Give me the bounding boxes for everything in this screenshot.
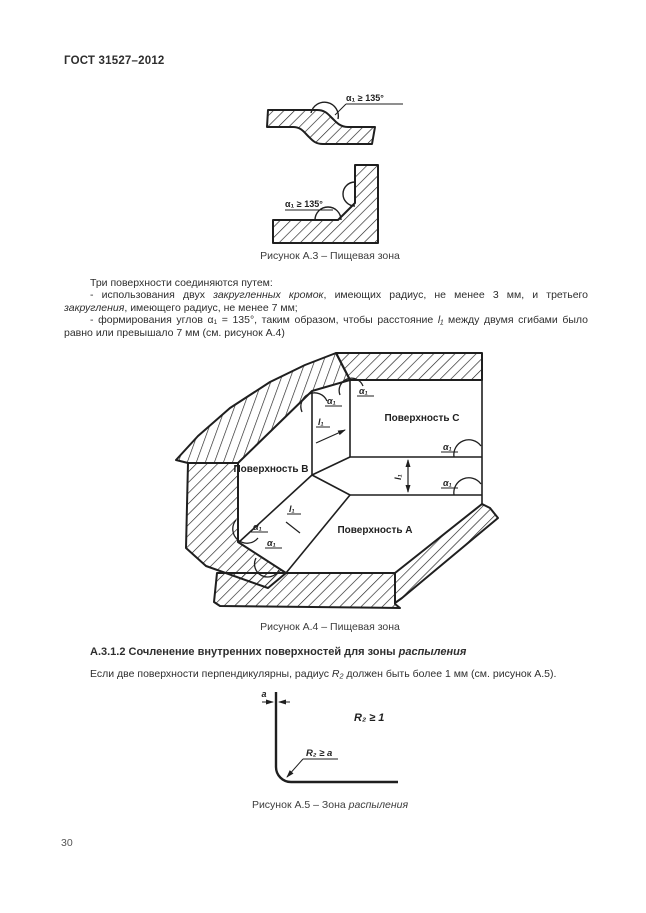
upper-left-band	[176, 353, 350, 463]
section-body: Если две поверхности перпендикулярны, ра…	[64, 668, 588, 680]
right-band	[395, 504, 498, 603]
heading-italic-term: распыления	[399, 646, 467, 658]
text-run: , имеющих радиус, не менее 3 мм, и треть…	[324, 289, 588, 301]
section-heading: А.3.1.2 Сочленение внутренних поверхност…	[64, 646, 588, 658]
body-paragraphs: Три поверхности соединяются путем: - исп…	[64, 277, 588, 339]
text-run: должен быть более 1 мм (см. рисунок А.5)…	[343, 668, 556, 680]
surface-b-label: Поверхность В	[233, 464, 308, 475]
alpha1-label: α₁	[267, 538, 276, 548]
angle-arc	[343, 182, 355, 206]
paragraph-intro: Три поверхности соединяются путем:	[64, 277, 588, 289]
alpha1-label: α₁	[327, 396, 336, 406]
figure-a5-drawing: a R₂ ≥ 1 R₂ ≥ a	[228, 688, 410, 800]
figure-a3-drawing: α₁ ≥ 135° α₁ ≥ 135°	[253, 88, 425, 250]
left-band	[186, 463, 286, 588]
dimension-tick	[286, 522, 300, 533]
paragraph-spray: Если две поверхности перпендикулярны, ра…	[64, 668, 588, 680]
figure-a4-caption: Рисунок А.4 – Пищевая зона	[170, 621, 490, 633]
figure-a3-caption: Рисунок А.3 – Пищевая зона	[170, 250, 490, 262]
document-page: ГОСТ 31527–2012 α₁ ≥ 135° α₁ ≥ 135° Рису…	[0, 0, 646, 913]
bottom-bar	[214, 573, 400, 608]
l1-label: l₁	[393, 474, 403, 480]
top-band	[336, 353, 482, 380]
alpha1-label: α₁	[443, 478, 452, 488]
page-title: ГОСТ 31527–2012	[64, 55, 165, 67]
alpha1-label: α₁	[443, 442, 452, 452]
leader-line	[335, 104, 403, 115]
alpha1-label: α₁	[359, 386, 368, 396]
radius-callout-label: R₂ ≥ a	[306, 748, 332, 759]
variable-r2: R₂	[332, 668, 344, 680]
text-run: Три поверхности соединяются путем:	[90, 277, 273, 289]
italic-term: закругленных кромок	[213, 289, 323, 301]
figure-a4-drawing: α₁ α₁ α₁ α₁ α₁ α₁ l₁ l₁ l₁ Поверхност	[150, 340, 510, 625]
angle-label-step: α₁ ≥ 135°	[346, 93, 384, 103]
italic-term: закругления	[64, 302, 124, 314]
page-number: 30	[61, 837, 73, 849]
thickness-label: a	[261, 689, 266, 699]
text-run: Если две поверхности перпендикулярны, ра…	[90, 668, 332, 680]
alpha1-label: α₁	[253, 522, 262, 532]
length-dimensions: l₁ l₁ l₁	[286, 417, 408, 533]
caption-italic-term: распыления	[349, 799, 408, 811]
stepped-bar-section	[267, 110, 375, 144]
paragraph-item2: - формирования углов α₁ = 135°, таким об…	[64, 314, 588, 339]
text-run: - формирования углов α₁ = 135°, таким об…	[90, 314, 438, 326]
leader-line	[287, 759, 303, 777]
l1-label: l₁	[318, 417, 324, 427]
text-run: , имеющего радиус, не менее 7 мм;	[124, 302, 297, 314]
radius-callout: R₂ ≥ a	[287, 748, 338, 777]
figure-a5-caption: Рисунок А.5 – Зона распыления	[170, 799, 490, 811]
paragraph-item1: - использования двух закругленных кромок…	[64, 289, 588, 314]
caption-text: Рисунок А.5 – Зона	[252, 799, 349, 811]
l1-label: l₁	[289, 504, 295, 514]
text-run: - использования двух	[90, 289, 213, 301]
radius-note: R₂ ≥ 1	[354, 712, 384, 724]
dimension-arrow	[316, 430, 345, 443]
surface-c-label: Поверхность С	[384, 413, 459, 424]
surface-a-label: Поверхность А	[337, 525, 412, 536]
heading-text: А.3.1.2 Сочленение внутренних поверхност…	[90, 646, 399, 658]
angle-label-corner: α₁ ≥ 135°	[285, 199, 323, 209]
